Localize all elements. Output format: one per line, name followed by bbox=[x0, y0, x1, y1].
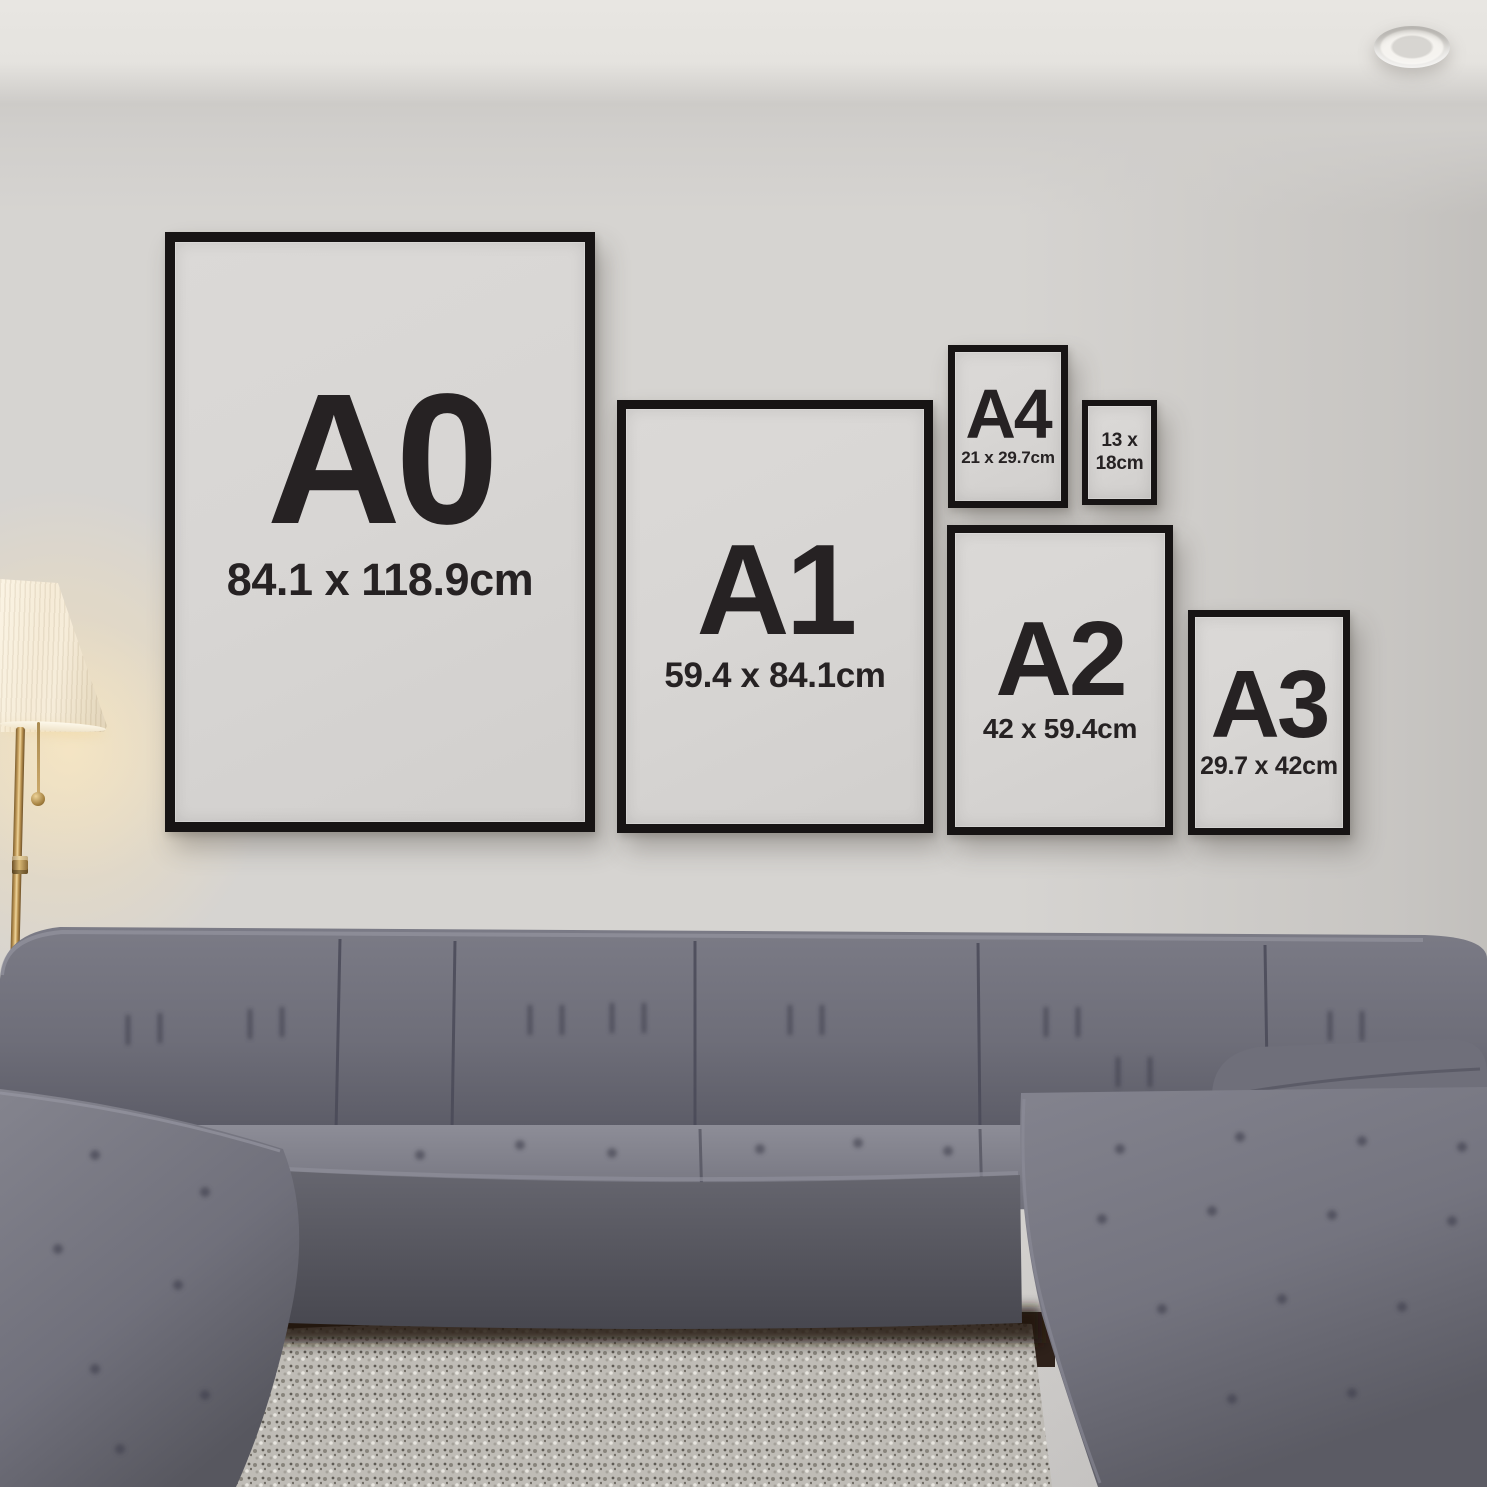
frame-a3-size-label: A3 bbox=[1211, 664, 1328, 746]
sofa-left-chaise bbox=[0, 1089, 299, 1487]
frame-13x18-dimensions-line2: 18cm bbox=[1096, 453, 1144, 476]
poster-frame-a4: A4 21 x 29.7cm bbox=[948, 345, 1068, 508]
lamp-pole-joint bbox=[12, 856, 28, 874]
poster-frame-a0: A0 84.1 x 118.9cm bbox=[165, 232, 595, 832]
frame-a4-size-label: A4 bbox=[965, 385, 1050, 445]
frame-a4-labels: A4 21 x 29.7cm bbox=[961, 385, 1055, 469]
frame-a1-paper: A1 59.4 x 84.1cm bbox=[626, 409, 924, 824]
frame-a2-paper: A2 42 x 59.4cm bbox=[955, 533, 1165, 827]
rug-shading bbox=[228, 1319, 1052, 1487]
frame-a0-dimensions: 84.1 x 118.9cm bbox=[227, 553, 533, 607]
ceiling bbox=[0, 0, 1487, 230]
frame-a0-size-label: A0 bbox=[267, 381, 494, 539]
frame-13x18-labels: 13 x 18cm bbox=[1096, 430, 1144, 476]
frame-a3-dimensions: 29.7 x 42cm bbox=[1200, 751, 1338, 781]
frame-a4-paper: A4 21 x 29.7cm bbox=[955, 352, 1061, 501]
poster-frame-a3: A3 29.7 x 42cm bbox=[1188, 610, 1350, 835]
frame-a3-paper: A3 29.7 x 42cm bbox=[1195, 617, 1343, 828]
living-room-scene: A0 84.1 x 118.9cm A1 59.4 x 84.1cm A4 21… bbox=[0, 0, 1487, 1487]
frame-a0-paper: A0 84.1 x 118.9cm bbox=[175, 242, 585, 822]
poster-frame-a1: A1 59.4 x 84.1cm bbox=[617, 400, 933, 833]
frame-a1-size-label: A1 bbox=[696, 536, 853, 646]
frame-a3-labels: A3 29.7 x 42cm bbox=[1200, 664, 1338, 782]
recessed-light-icon bbox=[1374, 26, 1450, 68]
frame-a0-labels: A0 84.1 x 118.9cm bbox=[227, 381, 533, 607]
lamp-shade bbox=[0, 576, 107, 732]
lamp-pull-chain bbox=[37, 722, 40, 794]
poster-frame-13x18: 13 x 18cm bbox=[1082, 400, 1157, 505]
frame-13x18-dimensions-line1: 13 x bbox=[1101, 430, 1137, 453]
frame-13x18-paper: 13 x 18cm bbox=[1088, 406, 1151, 499]
frame-a1-labels: A1 59.4 x 84.1cm bbox=[664, 536, 885, 698]
frame-a2-size-label: A2 bbox=[995, 614, 1124, 704]
sofa-front-panel bbox=[283, 1171, 1022, 1329]
sofa-right-chaise bbox=[1020, 1087, 1487, 1487]
frame-a1-dimensions: 59.4 x 84.1cm bbox=[664, 655, 885, 697]
frame-a2-dimensions: 42 x 59.4cm bbox=[983, 712, 1137, 746]
frame-a2-labels: A2 42 x 59.4cm bbox=[983, 614, 1137, 746]
poster-frame-a2: A2 42 x 59.4cm bbox=[947, 525, 1173, 835]
sofa-and-rug bbox=[0, 887, 1487, 1487]
lamp-pull-chain-ball bbox=[31, 792, 45, 806]
frame-a4-dimensions: 21 x 29.7cm bbox=[961, 448, 1055, 468]
